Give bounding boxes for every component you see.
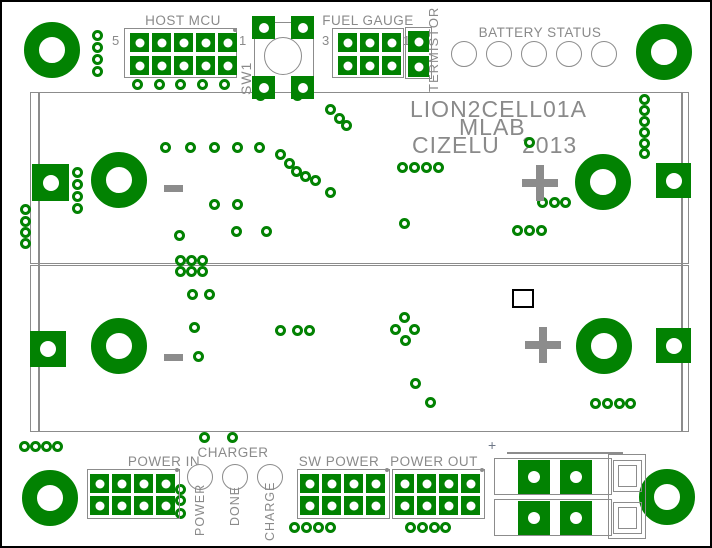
pad-hole [95,479,104,488]
power-out-pad [461,474,480,493]
fuel-gauge-pad [382,56,401,75]
header-label-power-out: POWER OUT [390,454,478,469]
pad-hole [422,479,431,488]
via [292,325,303,336]
mounting-hole [636,24,692,80]
via [390,324,401,335]
fiducial-square [512,289,534,308]
led-battery-status-4 [556,41,582,67]
power-out-pad [417,474,436,493]
via [313,522,324,533]
via [204,289,215,300]
battery-terminal-pad [91,318,147,374]
power-out-pad [439,474,458,493]
via [197,266,208,277]
via [197,255,208,266]
via [20,216,31,227]
power-in-pad [90,496,109,515]
pad-hole [135,38,144,47]
via [417,522,428,533]
pad-hole [371,501,380,510]
host-mcu-pad [174,33,193,52]
led-battery-status-5 [591,41,617,67]
via [92,30,103,41]
battery-holder-inner-line [681,92,683,432]
battery-side-pad [30,331,66,367]
pad-hole [327,479,336,488]
via [549,197,560,208]
pin-number-host-mcu-right: 1 [239,33,246,48]
pin1-marker-sw-power [385,468,389,472]
battery-side-pad [656,163,691,198]
via [310,175,321,186]
header-label-host-mcu: HOST MCU [145,13,221,28]
pad-hole [161,501,170,510]
pad-hole [387,38,396,47]
via [275,149,286,160]
pad-hole [139,479,148,488]
via [175,255,186,266]
fuel-gauge-pad [338,33,357,52]
power-out-pad [461,496,480,515]
terminal-pad [518,460,550,494]
terminal-pad [560,501,592,535]
via [199,432,210,443]
via [639,116,650,127]
pad-hole [305,479,314,488]
charger-led-done-label: DONE [228,486,242,526]
pad-hole [422,501,431,510]
via [639,94,650,105]
fuel-gauge-pad [382,33,401,52]
via [512,225,523,236]
via [397,162,408,173]
pad-hole [666,173,682,189]
polarity-plus-mark-v [536,165,544,201]
via [72,167,83,178]
via [304,325,315,336]
pin-number-host-mcu-left: 5 [112,33,119,48]
via [614,398,625,409]
via [174,230,185,241]
battery-holder-inner-line [38,92,40,432]
host-mcu-pad [130,33,149,52]
polarity-minus-mark [164,354,183,361]
pad-hole [570,512,582,524]
pin1-marker-power-in [175,468,179,472]
mounting-hole [639,469,695,525]
via [275,325,286,336]
via [175,266,186,277]
power-out-pad [417,496,436,515]
via [231,226,242,237]
led-group-label-battery-status: BATTERY STATUS [479,25,602,40]
sw-power-pad [366,474,385,493]
pin1-marker-host-mcu [233,28,237,32]
pad-hole [43,175,59,191]
pad-hole [139,501,148,510]
terminal-row-outline-2 [494,499,612,536]
via [625,398,636,409]
via [261,226,272,237]
battery-side-pad [32,164,69,201]
pad-hole [298,83,308,93]
via [409,162,420,173]
host-mcu-pad [130,56,149,75]
pad-hole [466,479,475,488]
pad-hole [179,38,188,47]
via [92,66,103,77]
via [92,42,103,53]
pad-hole [371,479,380,488]
pad-hole [365,61,374,70]
via [524,137,535,148]
pad-hole [157,38,166,47]
pad-hole [161,479,170,488]
via [175,79,186,90]
charger-led-power-label: POWER [193,484,207,536]
pin-number-fuel-gauge-left: 3 [322,33,329,48]
battery-terminal-pad [575,154,631,210]
via [289,522,300,533]
terminal-row-outline-1 [494,458,612,495]
via [132,79,143,90]
pad-hole [666,338,682,354]
sw1-pad [291,76,314,99]
pin1-marker-power-out [480,468,484,472]
via [186,266,197,277]
fuel-gauge-pad [360,33,379,52]
header-label-sw-power: SW POWER [299,454,380,469]
host-mcu-pad [174,56,193,75]
via [227,432,238,443]
pad-hole [201,61,210,70]
pad-hole [343,38,352,47]
host-mcu-pad [152,33,171,52]
via [232,142,243,153]
via [209,142,220,153]
via [154,79,165,90]
pcb-board: LION2CELL01A MLAB CIZELU 2013 + HOST MCU… [0,0,712,548]
via [72,191,83,202]
via [72,203,83,214]
pad-hole [298,23,308,33]
via [189,322,200,333]
pad-hole [466,501,475,510]
power-out-pad [395,496,414,515]
pad-hole [349,479,358,488]
via [400,335,411,346]
led-battery-status-2 [486,41,512,67]
via [560,197,571,208]
via [524,225,535,236]
power-out-pad [395,474,414,493]
via [185,142,196,153]
via [41,441,52,452]
pad-hole [305,501,314,510]
via [92,54,103,65]
via [52,441,63,452]
pad-hole [444,479,453,488]
via [421,162,432,173]
sw1-pad [252,16,275,39]
polarity-minus-mark [164,185,183,192]
sw1-button-circle [264,37,302,75]
sw-power-pad [344,496,363,515]
led-battery-status-1 [451,41,477,67]
pad-hole [570,471,582,483]
sw-power-pad [300,496,319,515]
via [440,522,451,533]
power-in-pad [112,496,131,515]
pad-hole [349,501,358,510]
host-mcu-pad [218,56,237,75]
pad-hole [400,501,409,510]
via [187,289,198,300]
via [409,324,420,335]
power-in-pad [134,496,153,515]
via [20,227,31,238]
via [186,255,197,266]
terminal-pad [518,501,550,535]
via [30,441,41,452]
pad-hole [223,38,232,47]
battery-terminal-pad [576,318,632,374]
via [590,398,601,409]
terminal-top-line [507,452,623,454]
power-out-pad [439,496,458,515]
host-mcu-pad [218,33,237,52]
pad-hole [259,23,269,33]
pad-hole [179,61,188,70]
sw-power-pad [366,496,385,515]
sw1-pad [252,76,275,99]
power-in-pad [134,474,153,493]
via [433,162,444,173]
via [429,522,440,533]
pad-hole [157,61,166,70]
via [193,351,204,362]
sw-power-pad [300,474,319,493]
via [639,138,650,149]
via [341,120,352,131]
terminal-pin-square-inner-1 [618,465,637,487]
pad-hole [223,61,232,70]
pad-hole [528,512,540,524]
via [602,398,613,409]
host-mcu-pad [196,56,215,75]
mounting-hole [22,470,78,526]
pad-hole [528,471,540,483]
pad-hole [343,61,352,70]
via [425,397,436,408]
sw1-label: SW1 [238,62,254,95]
via [399,312,410,323]
battery-side-pad [656,328,691,363]
terminal-pin-square-inner-2 [618,507,637,529]
via [20,238,31,249]
via [232,199,243,210]
header-label-fuel-gauge: FUEL GAUGE [322,13,414,28]
via [639,127,650,138]
terminal-plus-label: + [488,437,496,453]
pad-hole [40,341,56,357]
host-mcu-pad [196,33,215,52]
pad-hole [117,479,126,488]
via [254,142,265,153]
pad-hole [95,501,104,510]
via [160,142,171,153]
power-in-pad [156,474,175,493]
fuel-gauge-pad [360,56,379,75]
via [301,522,312,533]
pad-hole [387,61,396,70]
via [219,79,230,90]
mounting-hole [24,22,80,78]
host-mcu-pad [152,56,171,75]
via [300,171,311,182]
battery-terminal-pad [91,152,147,208]
led-group-label-charger: CHARGER [197,445,268,460]
pad-hole [117,501,126,510]
terminal-pad [560,460,592,494]
sw-power-pad [322,474,341,493]
via [19,441,30,452]
via [20,204,31,215]
led-battery-status-3 [521,41,547,67]
via [197,79,208,90]
fuel-gauge-pad [338,56,357,75]
via [325,187,336,198]
termistor-label: TERMISTOR [426,7,441,92]
sw-power-pad [344,474,363,493]
charger-led-charge-label: CHARGE [263,482,277,541]
via [399,218,410,229]
pad-hole [201,38,210,47]
pad-hole [444,501,453,510]
pad-hole [414,37,423,46]
pad-hole [259,83,269,93]
pad-hole [135,61,144,70]
pad-hole [327,501,336,510]
polarity-plus-mark-v [539,327,547,363]
pad-hole [414,62,423,71]
via [405,522,416,533]
pad-hole [365,38,374,47]
via [410,378,421,389]
sw1-pad [291,16,314,39]
header-label-power-in: POWER IN [128,454,200,469]
power-in-pad [90,474,109,493]
via [209,199,220,210]
power-in-pad [112,474,131,493]
via [325,522,336,533]
pad-hole [400,479,409,488]
sw-power-pad [322,496,341,515]
power-in-pad [156,496,175,515]
via [639,105,650,116]
via [639,148,650,159]
via [325,104,336,115]
via [72,179,83,190]
via [536,225,547,236]
